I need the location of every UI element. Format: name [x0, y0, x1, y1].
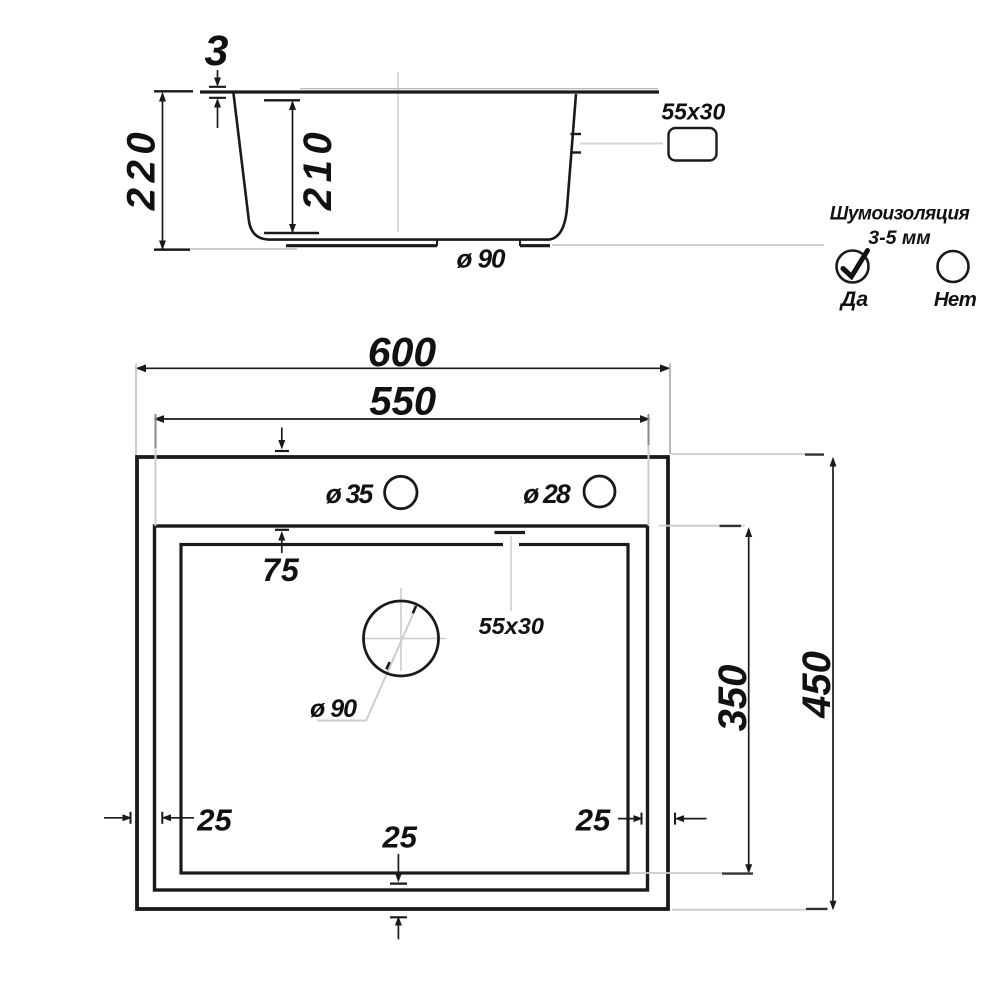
svg-text:350: 350: [711, 665, 755, 732]
svg-text:Нет: Нет: [934, 288, 977, 311]
svg-text:220: 220: [120, 127, 164, 212]
svg-text:600: 600: [368, 329, 437, 375]
svg-text:55x30: 55x30: [661, 99, 725, 125]
svg-text:Да: Да: [839, 287, 869, 311]
svg-text:210: 210: [296, 127, 340, 212]
svg-text:25: 25: [575, 803, 611, 838]
svg-text:55x30: 55x30: [479, 613, 544, 639]
svg-text:25: 25: [196, 803, 232, 838]
svg-text:550: 550: [369, 380, 436, 424]
svg-text:ø 90: ø 90: [456, 243, 506, 273]
svg-text:ø 35: ø 35: [326, 479, 375, 509]
svg-text:Шумоизоляция: Шумоизоляция: [830, 204, 970, 225]
svg-text:ø 28: ø 28: [523, 479, 571, 509]
svg-text:3-5 мм: 3-5 мм: [868, 227, 931, 249]
svg-text:450: 450: [795, 651, 839, 719]
svg-text:25: 25: [382, 820, 418, 855]
svg-text:3: 3: [205, 27, 229, 75]
svg-text:75: 75: [262, 552, 300, 588]
svg-text:ø 90: ø 90: [310, 695, 357, 723]
